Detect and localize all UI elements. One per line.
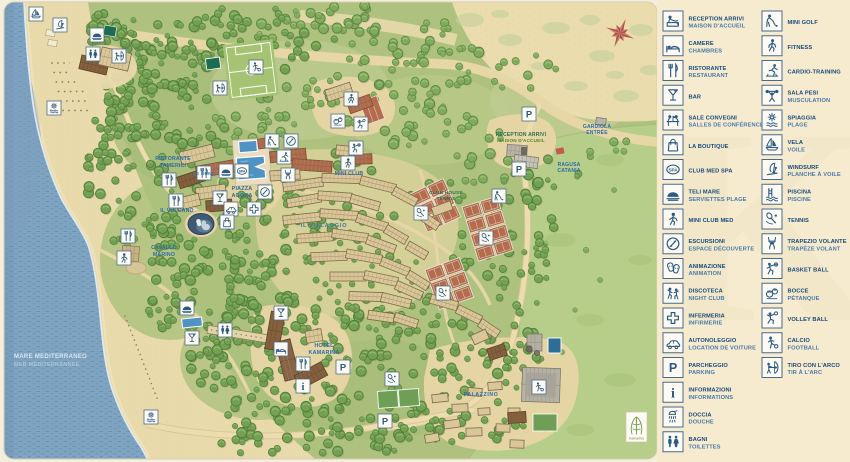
svg-text:TIRO CON L'ARCO: TIRO CON L'ARCO: [788, 363, 841, 369]
svg-text:TIR À L'ARC: TIR À L'ARC: [788, 369, 823, 376]
svg-text:INFIRMERIE: INFIRMERIE: [689, 321, 723, 327]
svg-text:INFORMAZIONI: INFORMAZIONI: [689, 388, 732, 394]
svg-text:CLUB MED SPA: CLUB MED SPA: [689, 169, 733, 175]
svg-text:CHAMBRES: CHAMBRES: [689, 48, 723, 54]
svg-text:BOCCE: BOCCE: [788, 289, 809, 295]
svg-text:BASKET BALL: BASKET BALL: [788, 268, 830, 274]
svg-text:MARE MEDITERRANEO: MARE MEDITERRANEO: [14, 354, 87, 360]
svg-text:RISTORANTE: RISTORANTE: [155, 156, 191, 162]
svg-text:TENNIS: TENNIS: [788, 218, 810, 224]
svg-text:NIGHT CLUB: NIGHT CLUB: [689, 296, 725, 302]
svg-text:MINI CLUB: MINI CLUB: [335, 171, 364, 177]
svg-text:CLUB HOUSE: CLUB HOUSE: [429, 190, 463, 196]
svg-text:LA BOUTIQUE: LA BOUTIQUE: [689, 144, 729, 150]
svg-text:RESTAURANT: RESTAURANT: [689, 73, 729, 79]
svg-text:IL VULCANO: IL VULCANO: [160, 208, 194, 214]
svg-text:IL VILLAGGIO: IL VILLAGGIO: [301, 223, 348, 229]
svg-text:SERVIETTES PLAGE: SERVIETTES PLAGE: [689, 197, 747, 203]
svg-text:PLAGE: PLAGE: [788, 123, 808, 129]
svg-text:VELA: VELA: [788, 140, 804, 146]
svg-text:PIAZZA: PIAZZA: [232, 186, 253, 192]
svg-text:MINI CLUB MED: MINI CLUB MED: [689, 218, 734, 224]
svg-text:CATANIA: CATANIA: [557, 168, 580, 174]
svg-text:MER MÉDITERRANNÉE: MER MÉDITERRANNÉE: [14, 360, 80, 368]
svg-text:MAISON D'ACCUEIL: MAISON D'ACCUEIL: [497, 138, 545, 143]
svg-text:LE DUNE: LE DUNE: [193, 171, 216, 177]
svg-text:FITNESS: FITNESS: [788, 45, 813, 51]
svg-text:PARCHEGGIO: PARCHEGGIO: [689, 363, 729, 369]
svg-text:Kamarina: Kamarina: [629, 437, 644, 441]
svg-text:TELI MARE: TELI MARE: [689, 190, 721, 196]
svg-text:MINI GOLF: MINI GOLF: [788, 20, 819, 26]
svg-text:DOUCHE: DOUCHE: [689, 420, 714, 426]
svg-text:PARKING: PARKING: [689, 370, 716, 376]
svg-text:WINDSURF: WINDSURF: [788, 165, 820, 171]
svg-text:TRAPEZIO VOLANTE: TRAPEZIO VOLANTE: [788, 239, 847, 245]
svg-text:ESCURSIONI: ESCURSIONI: [689, 239, 726, 245]
svg-text:DOCCIA: DOCCIA: [689, 412, 712, 418]
svg-text:BAGNI: BAGNI: [689, 437, 708, 443]
svg-text:INFORMATIONS: INFORMATIONS: [689, 395, 734, 401]
svg-text:LOCATION DE VOITURE: LOCATION DE VOITURE: [689, 345, 757, 351]
svg-text:SALE CONVEGNI: SALE CONVEGNI: [689, 115, 738, 121]
svg-text:ESPACE DÉCOUVERTE: ESPACE DÉCOUVERTE: [689, 244, 755, 252]
svg-text:HOTEL: HOTEL: [314, 343, 334, 349]
svg-text:SPIAGGIA: SPIAGGIA: [788, 115, 817, 121]
svg-text:FOOTBALL: FOOTBALL: [788, 345, 820, 351]
svg-text:CARDIO-TRAINING: CARDIO-TRAINING: [788, 70, 842, 76]
svg-text:RISTORANTE: RISTORANTE: [689, 66, 727, 72]
svg-text:TRAPÈZE VOLANT: TRAPÈZE VOLANT: [788, 244, 841, 252]
svg-text:CALCIO: CALCIO: [788, 338, 811, 344]
svg-text:K: K: [656, 70, 850, 381]
svg-text:AGORA: AGORA: [231, 193, 252, 199]
svg-text:BAR: BAR: [689, 94, 702, 100]
svg-text:TOILETTES: TOILETTES: [689, 444, 721, 450]
svg-text:TENNIS: TENNIS: [437, 196, 456, 202]
svg-text:VOLLEY BALL: VOLLEY BALL: [788, 317, 829, 323]
svg-text:PISCINA: PISCINA: [788, 190, 812, 196]
svg-text:ANIMATION: ANIMATION: [689, 271, 722, 277]
svg-text:SALLES DE CONFÉRENCE: SALLES DE CONFÉRENCE: [689, 121, 764, 129]
svg-text:VOILE: VOILE: [788, 147, 806, 153]
svg-text:TAMERICI: TAMERICI: [160, 163, 187, 169]
svg-text:ANIMAZIONE: ANIMAZIONE: [689, 264, 726, 270]
svg-text:MUSCULATION: MUSCULATION: [788, 98, 831, 104]
svg-text:AUTONOLEGGIO: AUTONOLEGGIO: [689, 338, 737, 344]
svg-text:DISCOTECA: DISCOTECA: [689, 289, 723, 295]
svg-text:CAMERE: CAMERE: [689, 41, 714, 47]
svg-text:MARINO: MARINO: [153, 252, 175, 258]
svg-text:MAISON D'ACCUEIL: MAISON D'ACCUEIL: [689, 24, 746, 30]
svg-text:CAVALLO: CAVALLO: [151, 245, 177, 251]
svg-text:PÉTANQUE: PÉTANQUE: [788, 294, 820, 302]
svg-text:ENTRÉE: ENTRÉE: [586, 128, 608, 136]
svg-text:PLANCHE À VOILE: PLANCHE À VOILE: [788, 171, 841, 178]
svg-text:PALAZZINO: PALAZZINO: [464, 392, 499, 398]
svg-text:PISCINE: PISCINE: [788, 197, 812, 203]
svg-text:RECEPTION ARRIVI: RECEPTION ARRIVI: [689, 16, 745, 22]
svg-text:KAMARINA: KAMARINA: [309, 350, 340, 356]
svg-text:INFERMERIA: INFERMERIA: [689, 313, 725, 319]
svg-text:SALA PESI: SALA PESI: [788, 91, 819, 97]
